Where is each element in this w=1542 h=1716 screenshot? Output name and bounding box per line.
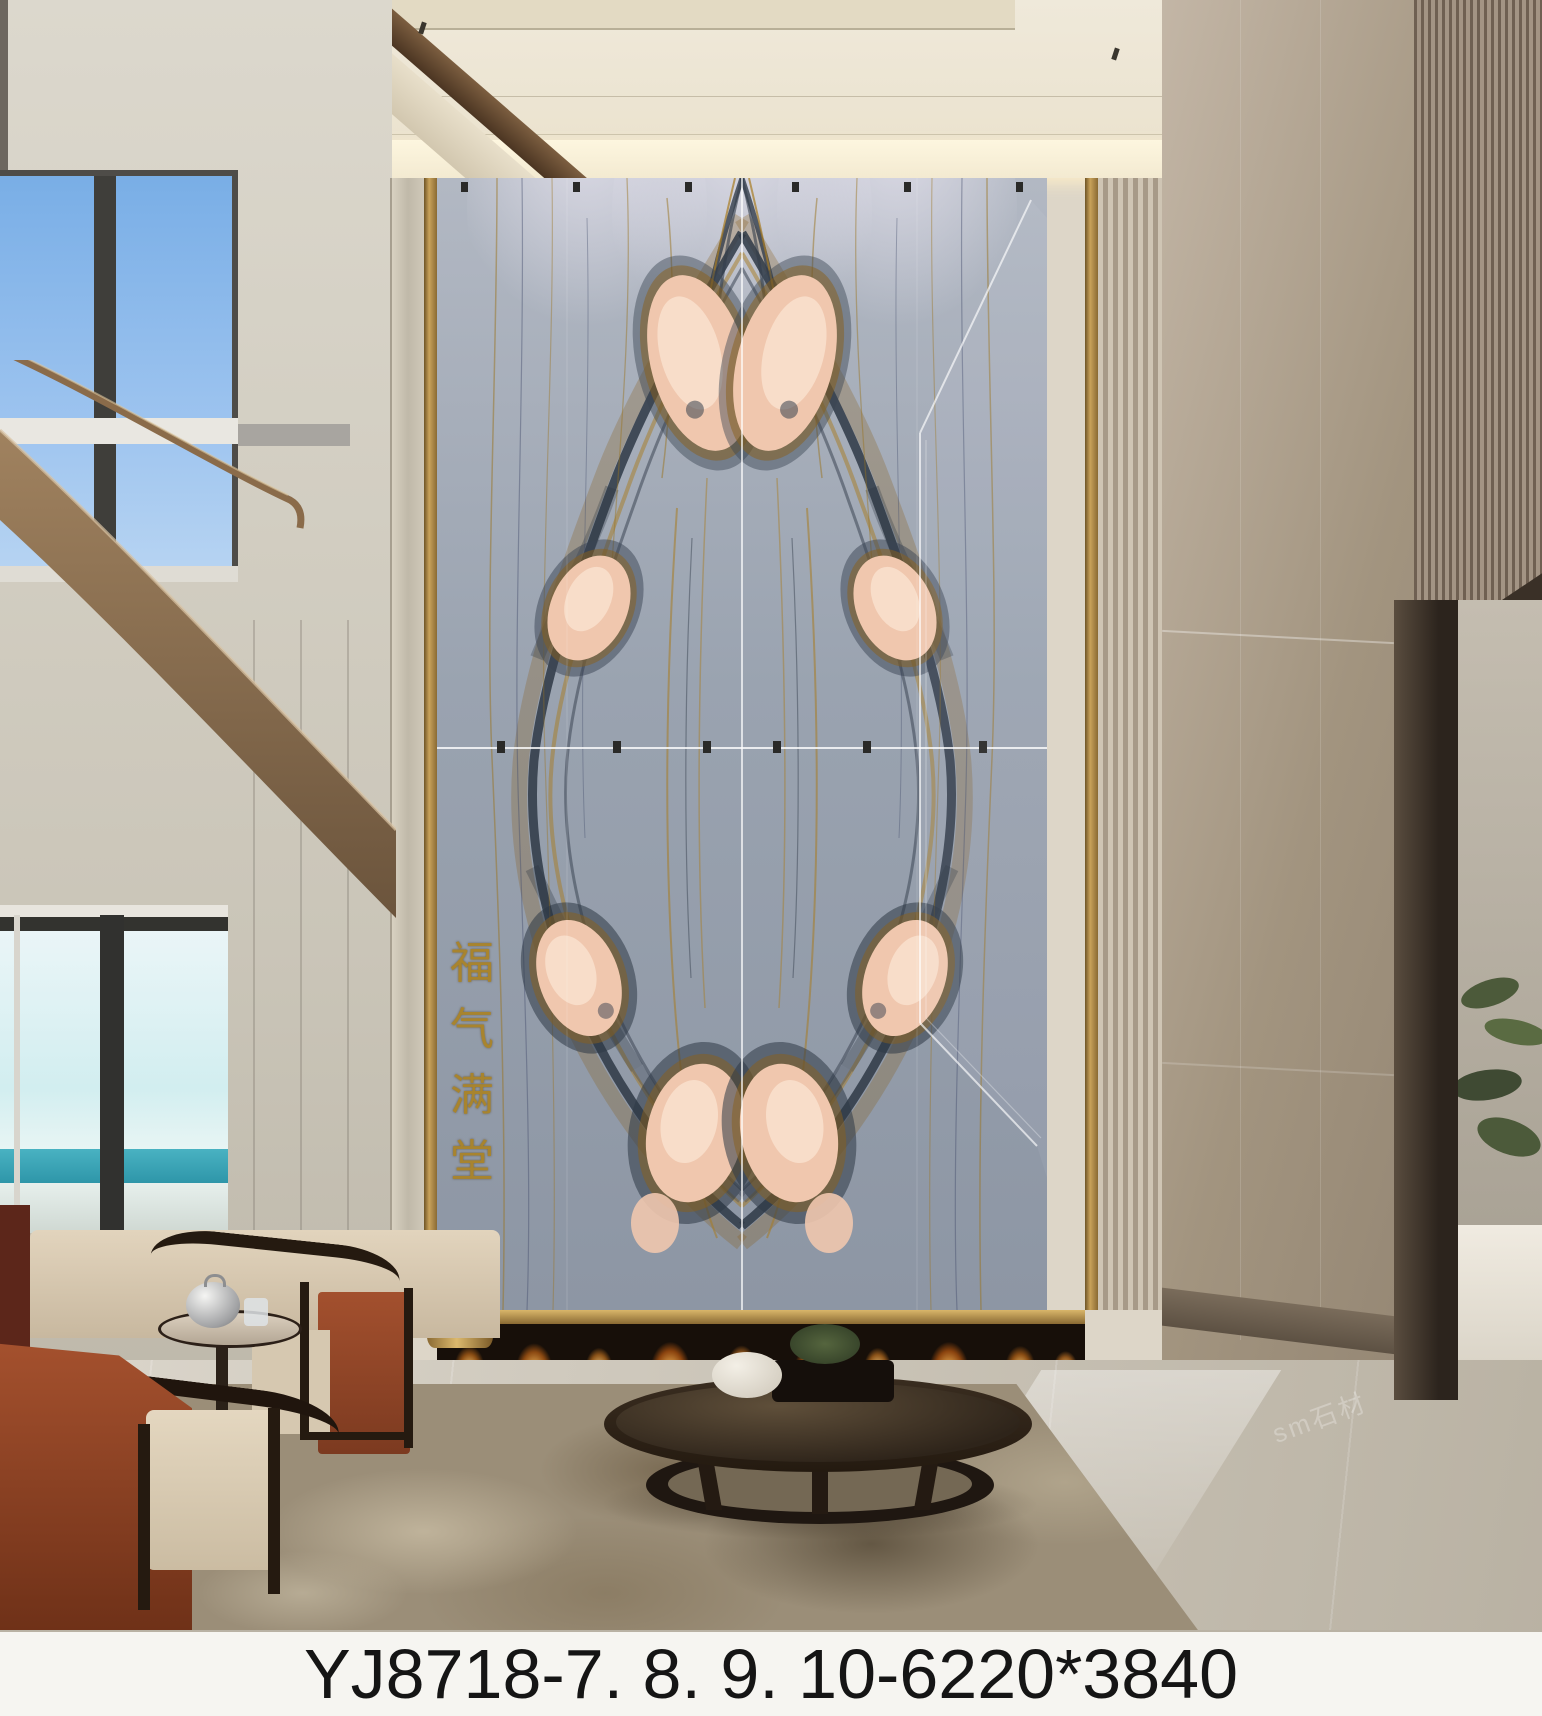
- bonsai-plant: [790, 1324, 860, 1364]
- product-code-text: YJ8718-7. 8. 9. 10-6220*3840: [304, 1634, 1238, 1714]
- chair-frame-bar: [138, 1424, 150, 1610]
- chair-frame-bar: [268, 1408, 280, 1594]
- glass-cup: [244, 1298, 268, 1326]
- marble-gold-frame-right: [1085, 178, 1098, 1310]
- bronze-column: [1394, 600, 1458, 1400]
- table-tray: [772, 1360, 894, 1402]
- inscription-char: 气: [449, 1008, 495, 1052]
- product-photo-page: 福 气 满 堂 sm石材 YJ8718-7. 8. 9. 10-6220*384…: [0, 0, 1542, 1716]
- marble-pilaster-right: [1098, 178, 1162, 1310]
- lower-left-window: [0, 905, 228, 1233]
- armchair-cushion: [146, 1410, 278, 1570]
- side-room-view: [1456, 600, 1542, 1400]
- inscription-char: 堂: [449, 1140, 495, 1184]
- white-decor-object: [712, 1352, 782, 1398]
- inscription-char: 满: [449, 1074, 495, 1118]
- chair-frame-bar: [404, 1288, 413, 1448]
- calligraphy-inscription: 福 气 满 堂: [449, 942, 495, 1184]
- marble-bottom-trim: [437, 1310, 1085, 1324]
- bookmatched-marble-wall: [437, 178, 1047, 1310]
- ribbed-slat-panel: [1414, 0, 1542, 660]
- panel-joint: [1320, 0, 1321, 1340]
- marble-gold-frame-left: [424, 178, 437, 1310]
- ceiling-recess-panel: [355, 0, 1015, 30]
- silver-teapot: [186, 1282, 240, 1328]
- stair-stringer: [0, 430, 396, 918]
- window-mullion: [100, 915, 124, 1233]
- inscription-char: 福: [449, 942, 495, 986]
- panel-joint: [1240, 0, 1241, 1340]
- caption-bar: YJ8718-7. 8. 9. 10-6220*3840: [0, 1630, 1542, 1716]
- window-frame-line: [14, 915, 20, 1233]
- staircase: [0, 360, 396, 920]
- crown-molding-line: [300, 96, 1260, 97]
- daybed-platform: [1456, 1225, 1542, 1373]
